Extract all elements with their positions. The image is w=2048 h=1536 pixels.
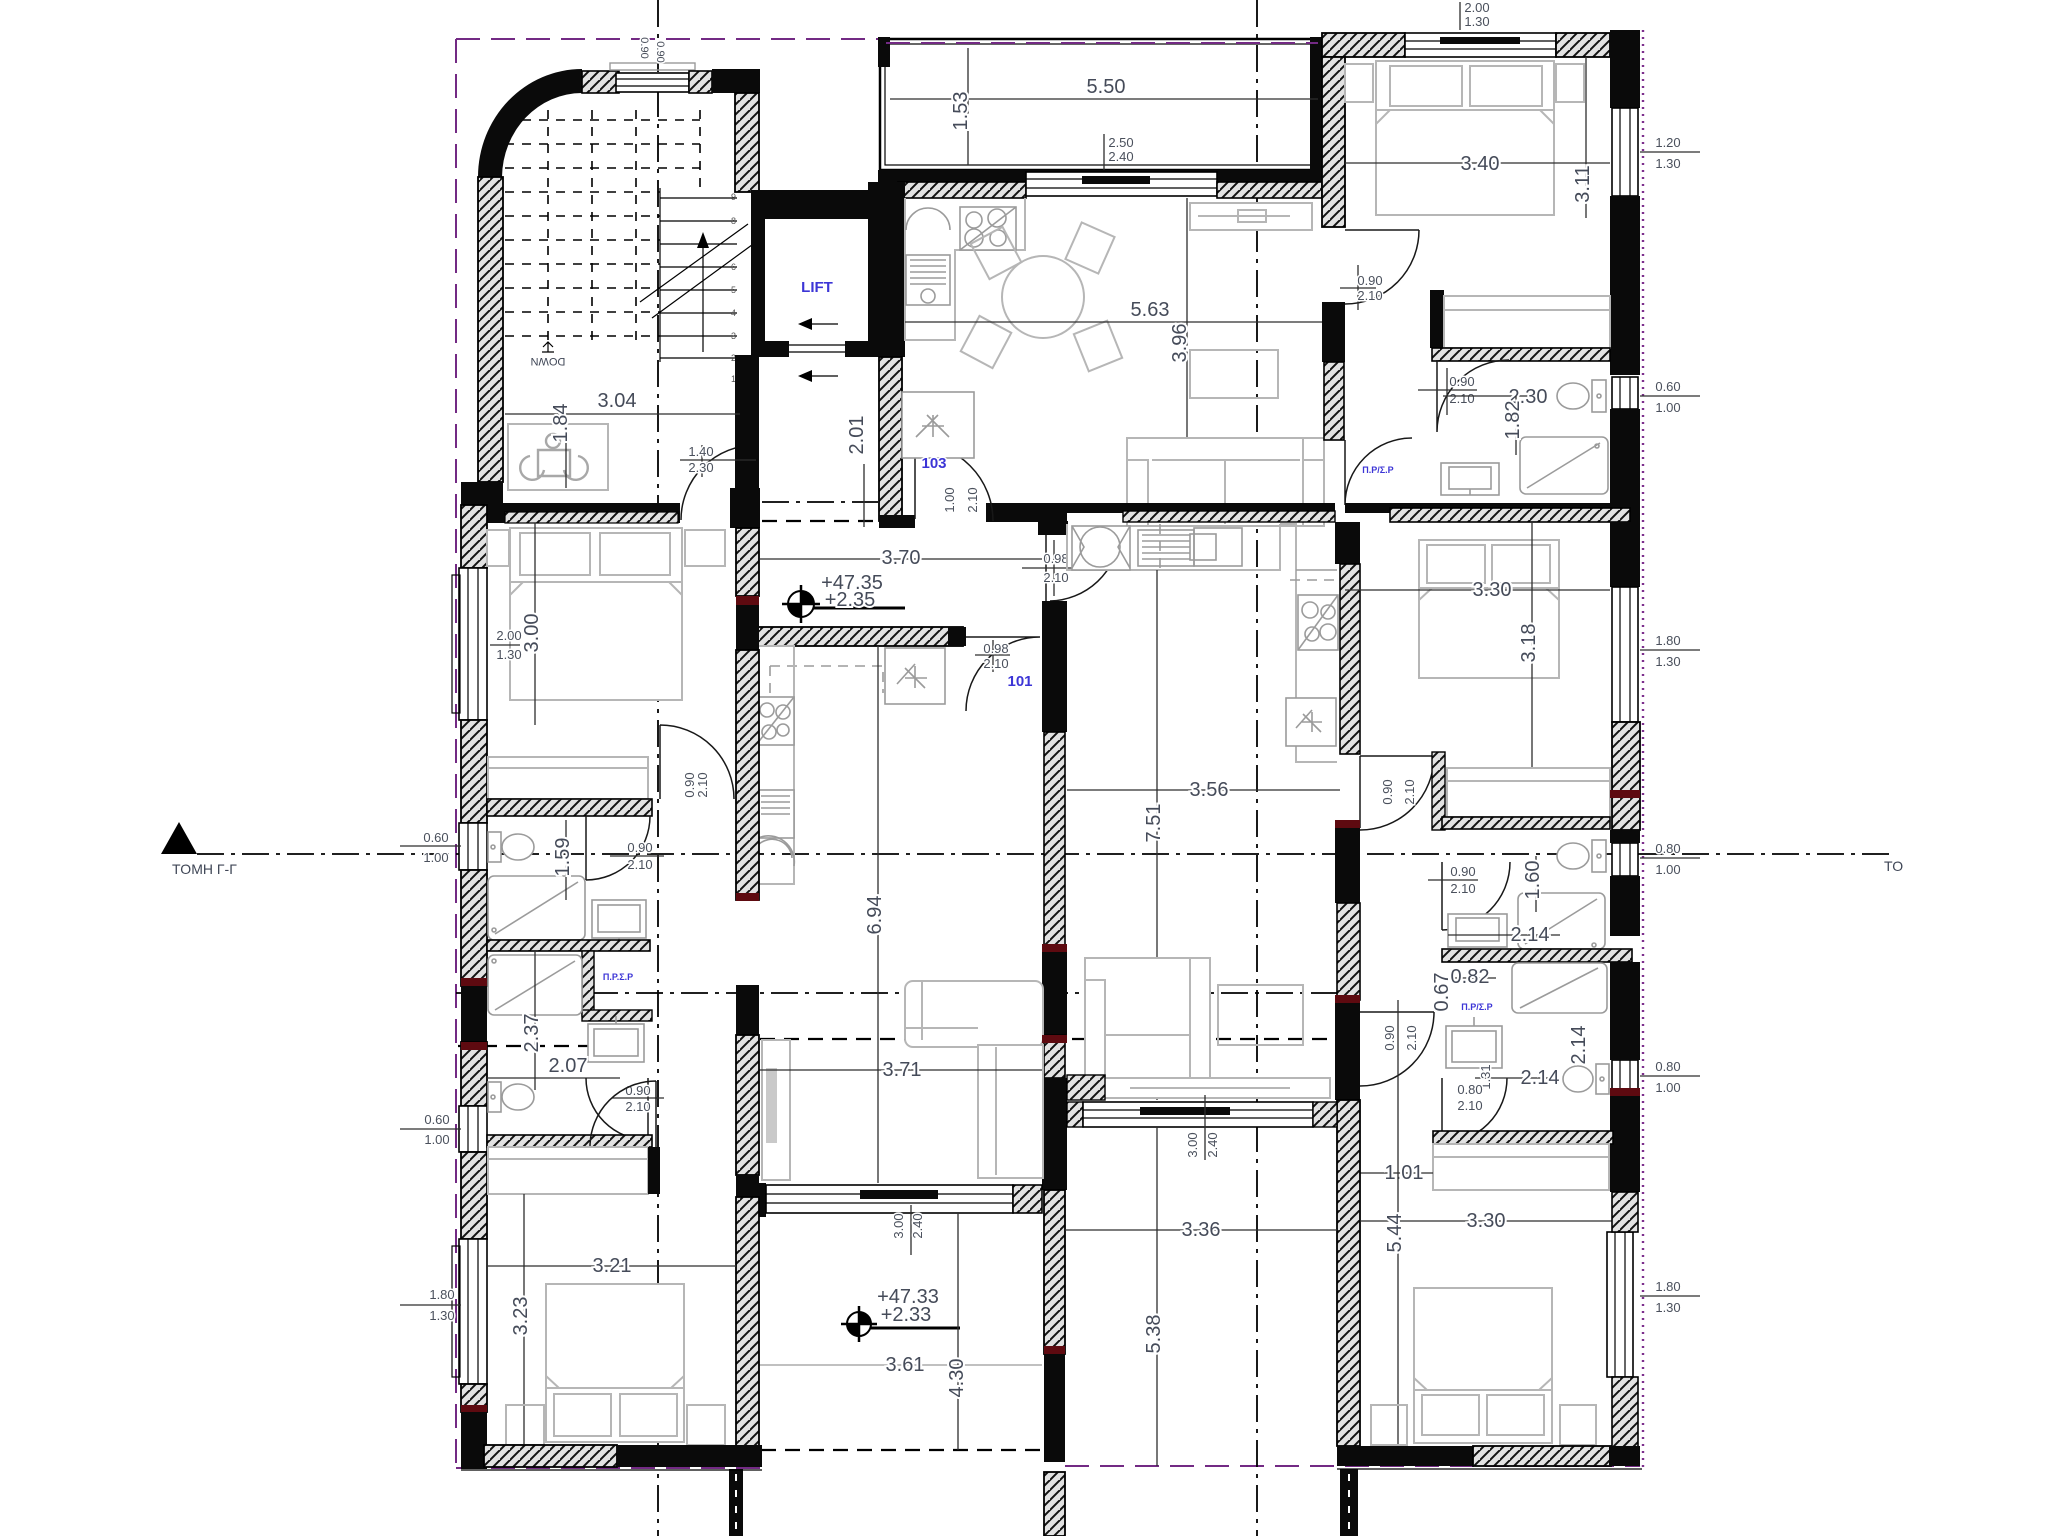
svg-text:1.00: 1.00 bbox=[423, 850, 448, 865]
svg-text:1.01: 1.01 bbox=[1385, 1162, 1424, 1184]
svg-text:2.00: 2.00 bbox=[1464, 0, 1489, 15]
svg-text:3.00: 3.00 bbox=[1185, 1132, 1200, 1157]
svg-text:6.94: 6.94 bbox=[864, 896, 886, 935]
svg-text:3.23: 3.23 bbox=[510, 1297, 532, 1336]
svg-text:2.40: 2.40 bbox=[1205, 1132, 1220, 1157]
svg-text:1.53: 1.53 bbox=[950, 92, 972, 131]
svg-text:103: 103 bbox=[921, 455, 946, 472]
svg-text:1.00: 1.00 bbox=[942, 487, 957, 512]
svg-text:2.01: 2.01 bbox=[846, 416, 868, 455]
svg-text:2.37: 2.37 bbox=[521, 1014, 543, 1053]
svg-text:1.30: 1.30 bbox=[1655, 1300, 1680, 1315]
svg-text:2.40: 2.40 bbox=[910, 1213, 925, 1238]
svg-text:2.14: 2.14 bbox=[1511, 924, 1550, 946]
svg-text:5.44: 5.44 bbox=[1384, 1214, 1406, 1253]
svg-text:Π.Ρ/Σ.Ρ: Π.Ρ/Σ.Ρ bbox=[1461, 1002, 1492, 1012]
svg-text:1.80: 1.80 bbox=[1655, 1279, 1680, 1294]
svg-text:0.82: 0.82 bbox=[1451, 966, 1490, 988]
svg-text:LIFT: LIFT bbox=[801, 279, 833, 296]
svg-text:0.80: 0.80 bbox=[1457, 1082, 1482, 1097]
svg-text:0.90: 0.90 bbox=[1450, 864, 1475, 879]
svg-text:101: 101 bbox=[1007, 673, 1032, 690]
svg-text:5.38: 5.38 bbox=[1143, 1315, 1165, 1354]
svg-text:ΤΟ: ΤΟ bbox=[1884, 858, 1903, 874]
svg-text:2.10: 2.10 bbox=[1450, 881, 1475, 896]
svg-text:3.36: 3.36 bbox=[1182, 1219, 1221, 1241]
svg-text:1.30: 1.30 bbox=[1655, 156, 1680, 171]
svg-text:2.10: 2.10 bbox=[965, 487, 980, 512]
svg-text:3.70: 3.70 bbox=[882, 547, 921, 569]
svg-text:0.90: 0.90 bbox=[625, 1083, 650, 1098]
svg-text:+2.33: +2.33 bbox=[881, 1304, 932, 1326]
svg-text:3.56: 3.56 bbox=[1190, 779, 1229, 801]
svg-text:2.10: 2.10 bbox=[1402, 779, 1417, 804]
svg-text:2.00: 2.00 bbox=[496, 628, 521, 643]
svg-text:0.98: 0.98 bbox=[1043, 551, 1068, 566]
svg-text:5: 5 bbox=[731, 285, 736, 295]
svg-text:0.90: 0.90 bbox=[1449, 374, 1474, 389]
svg-text:5.63: 5.63 bbox=[1131, 299, 1170, 321]
svg-text:2.14: 2.14 bbox=[1521, 1067, 1560, 1089]
svg-text:3.04: 3.04 bbox=[598, 390, 637, 412]
svg-text:4: 4 bbox=[731, 308, 736, 318]
svg-text:2.10: 2.10 bbox=[1357, 288, 1382, 303]
svg-text:4.30: 4.30 bbox=[946, 1359, 968, 1398]
svg-text:3.30: 3.30 bbox=[1473, 579, 1512, 601]
svg-text:+2.35: +2.35 bbox=[825, 589, 876, 611]
svg-text:2.10: 2.10 bbox=[1404, 1025, 1419, 1050]
svg-text:3.00: 3.00 bbox=[891, 1213, 906, 1238]
svg-text:3: 3 bbox=[731, 331, 736, 341]
svg-text:1.30: 1.30 bbox=[1464, 14, 1489, 29]
svg-text:2.10: 2.10 bbox=[695, 772, 710, 797]
svg-text:1.20: 1.20 bbox=[1655, 135, 1680, 150]
svg-text:8: 8 bbox=[731, 216, 736, 226]
svg-text:1.80: 1.80 bbox=[1655, 633, 1680, 648]
svg-text:1.82: 1.82 bbox=[1502, 401, 1524, 440]
svg-text:1.80: 1.80 bbox=[429, 1287, 454, 1302]
svg-text:0.98: 0.98 bbox=[983, 641, 1008, 656]
svg-text:0.60: 0.60 bbox=[423, 830, 448, 845]
svg-text:0.90: 0.90 bbox=[638, 37, 650, 58]
svg-text:0.90: 0.90 bbox=[654, 41, 666, 62]
svg-text:7.51: 7.51 bbox=[1143, 804, 1165, 843]
svg-text:ΤΟΜΗ Γ-Γ: ΤΟΜΗ Γ-Γ bbox=[172, 861, 237, 877]
svg-text:1.00: 1.00 bbox=[1655, 1080, 1680, 1095]
svg-text:3.18: 3.18 bbox=[1518, 624, 1540, 663]
svg-text:9: 9 bbox=[731, 192, 736, 202]
svg-text:1.30: 1.30 bbox=[429, 1308, 454, 1323]
svg-text:Π.Ρ.Σ.Ρ: Π.Ρ.Σ.Ρ bbox=[603, 972, 633, 982]
svg-text:5.50: 5.50 bbox=[1087, 76, 1126, 98]
svg-text:3.40: 3.40 bbox=[1461, 153, 1500, 175]
svg-text:3.00: 3.00 bbox=[521, 614, 543, 653]
svg-text:2.10: 2.10 bbox=[1457, 1098, 1482, 1113]
svg-text:2.10: 2.10 bbox=[1043, 570, 1068, 585]
svg-text:DOWN: DOWN bbox=[531, 355, 566, 367]
svg-text:1.59: 1.59 bbox=[552, 838, 574, 877]
svg-text:2.10: 2.10 bbox=[983, 656, 1008, 671]
svg-text:0.67: 0.67 bbox=[1431, 973, 1453, 1012]
svg-text:1.40: 1.40 bbox=[688, 444, 713, 459]
svg-text:1.00: 1.00 bbox=[1655, 400, 1680, 415]
svg-text:1.84: 1.84 bbox=[550, 404, 572, 443]
svg-text:3.71: 3.71 bbox=[883, 1059, 922, 1081]
svg-text:2.07: 2.07 bbox=[549, 1055, 588, 1077]
svg-text:0.90: 0.90 bbox=[1382, 1025, 1397, 1050]
svg-text:0.80: 0.80 bbox=[1655, 1059, 1680, 1074]
svg-text:2.50: 2.50 bbox=[1108, 135, 1133, 150]
svg-text:0.60: 0.60 bbox=[1655, 379, 1680, 394]
svg-text:2.10: 2.10 bbox=[1449, 391, 1474, 406]
svg-text:2.40: 2.40 bbox=[1108, 149, 1133, 164]
svg-text:3.21: 3.21 bbox=[593, 1255, 632, 1277]
svg-text:1.30: 1.30 bbox=[496, 647, 521, 662]
svg-text:2.14: 2.14 bbox=[1568, 1026, 1590, 1065]
svg-text:1.00: 1.00 bbox=[424, 1132, 449, 1147]
svg-text:3.11: 3.11 bbox=[1572, 165, 1594, 202]
svg-text:Π.Ρ/Σ.Ρ: Π.Ρ/Σ.Ρ bbox=[1362, 465, 1393, 475]
svg-text:1.30: 1.30 bbox=[1655, 654, 1680, 669]
svg-text:6: 6 bbox=[731, 262, 736, 272]
svg-text:2.10: 2.10 bbox=[625, 1099, 650, 1114]
svg-text:1.60: 1.60 bbox=[1522, 861, 1544, 900]
svg-text:0.60: 0.60 bbox=[424, 1112, 449, 1127]
svg-text:3.96: 3.96 bbox=[1169, 324, 1191, 363]
svg-text:0.80: 0.80 bbox=[1655, 841, 1680, 856]
svg-text:0.90: 0.90 bbox=[1380, 779, 1395, 804]
svg-text:3.30: 3.30 bbox=[1467, 1210, 1506, 1232]
svg-text:3.61: 3.61 bbox=[886, 1354, 925, 1376]
svg-text:0.90: 0.90 bbox=[627, 840, 652, 855]
svg-text:2.30: 2.30 bbox=[688, 460, 713, 475]
svg-text:1.00: 1.00 bbox=[1655, 862, 1680, 877]
svg-text:0.90: 0.90 bbox=[1357, 273, 1382, 288]
svg-text:2.10: 2.10 bbox=[627, 857, 652, 872]
